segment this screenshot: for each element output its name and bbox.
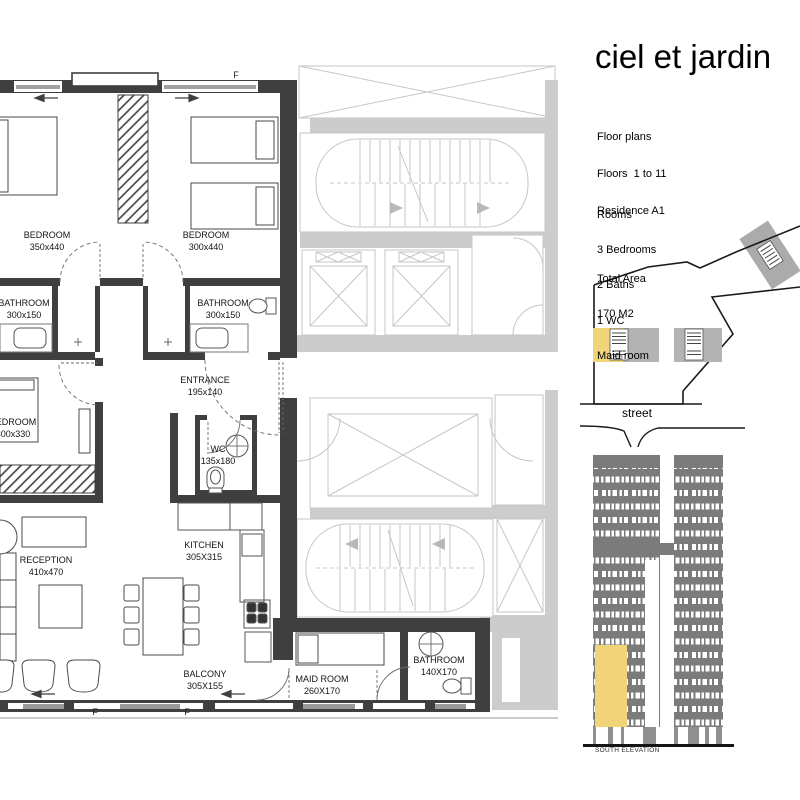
sheet-title: ciel et jardin — [595, 40, 771, 74]
room-label-reception: RECEPTION410x470 — [20, 554, 73, 578]
street-edge — [580, 426, 631, 447]
project-info-line: Floors 1 to 11 — [597, 168, 667, 181]
elevation-right-tower — [674, 455, 723, 727]
room-label-wc: WC135x180 — [201, 443, 236, 467]
room-label-bedroom-3: BEDROOM300x330 — [0, 416, 36, 440]
elevation-caption: SOUTH ELEVATION — [595, 747, 660, 754]
room-label-bedroom-1: BEDROOM350x440 — [24, 229, 71, 253]
room-label-bathroom-1: BATHROOM300x150 — [0, 297, 50, 321]
total-area-label: Total Area — [597, 274, 646, 285]
room-label-bathroom-2: BATHROOM300x150 — [197, 297, 248, 321]
room-label-kitchen: KITCHEN305X315 — [184, 539, 224, 563]
total-area-value: 170 M2 — [597, 309, 646, 320]
window-tag-bottom-left: F — [92, 707, 98, 717]
elevation-highlight-floors — [595, 645, 627, 727]
common-core — [297, 66, 558, 710]
south-elevation — [583, 455, 734, 747]
room-label-bathroom-3: BATHROOM140X170 — [413, 654, 464, 678]
window-tag-top: F — [233, 70, 239, 80]
project-info-line: Floor plans — [597, 131, 667, 144]
window-tag-bottom-right: F — [184, 707, 190, 717]
room-label-maid-room: MAID ROOM260X170 — [296, 673, 349, 697]
room-label-balcony: BALCONY305X155 — [183, 668, 226, 692]
program-item: Maid room — [597, 351, 656, 362]
room-label-entrance: ENTRANCE195x140 — [180, 374, 230, 398]
street-label: street — [622, 406, 652, 420]
total-area: Total Area 170 M2 — [597, 250, 646, 344]
floor-plan-drawing — [0, 0, 800, 800]
sheet: ciel et jardin Floor plans Floors 1 to 1… — [0, 0, 800, 800]
room-label-bedroom-2: BEDROOM300x440 — [183, 229, 230, 253]
program-heading: Rooms — [597, 210, 656, 221]
